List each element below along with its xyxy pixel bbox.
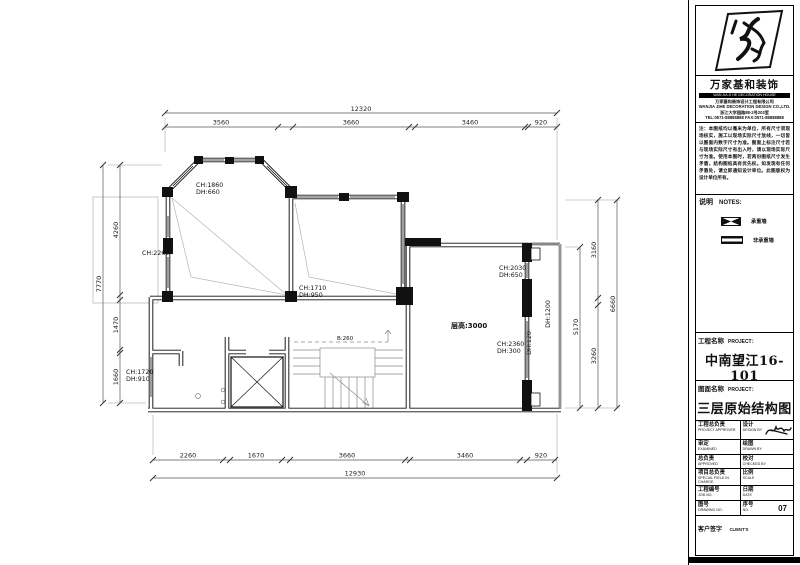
general-notes-box: 注：本图纸均以毫米为单位，所有尺寸须现场核实，施工以现场实际尺寸放线，一切皆以图… — [696, 123, 793, 195]
company-name-cn: 万家基和装饰 — [696, 77, 793, 92]
dim-bottom-overall: 12930 — [345, 470, 366, 478]
table-row: 工程编号JOB NO. 日期DATE — [696, 486, 793, 501]
project-name-box: 工程名称 PROJECT： 中南望江16-101 — [696, 333, 793, 381]
row-label-en: JOB NO. — [698, 493, 738, 497]
sill-dh-label: DH:120 — [526, 331, 533, 355]
room2-ch-label: CH:1710 — [299, 285, 326, 292]
client-label-en: CLIENT'S — [729, 527, 748, 532]
ceiling-slope-lines — [172, 198, 401, 295]
dim-bottom-seg-4: 3460 — [457, 452, 474, 460]
legend-item-bearing-wall: 承重墙 — [721, 217, 790, 226]
drawing-name-value: 三层原始结构图 — [696, 398, 793, 417]
table-row: 审定EXAMINED 绘图DRAWN BY — [696, 440, 793, 455]
client-label-cn: 客户签字 — [698, 527, 722, 533]
project-name-value: 中南望江16-101 — [696, 350, 793, 381]
logo-box — [696, 6, 793, 76]
drawing-label-en: PROJECT： — [728, 386, 757, 393]
row-label-en: EXAMINED — [698, 447, 738, 451]
row-label-en: DATE — [743, 493, 791, 497]
dimension-ticks — [100, 110, 620, 481]
right-win-ch-label: CH:2360 — [497, 341, 524, 348]
dim-left-overall: 7770 — [95, 276, 103, 293]
bearing-wall-icon — [721, 217, 741, 226]
sheet-bottom-border — [688, 557, 800, 563]
dim-bottom-seg-1: 2260 — [180, 452, 197, 460]
stair-note-label: B:260 — [337, 336, 354, 342]
dim-left-seg-3: 1660 — [112, 369, 120, 386]
dim-right-seg-2: 3260 — [590, 348, 598, 365]
dim-bottom-seg-5: 920 — [535, 452, 547, 460]
plan-circles — [196, 388, 225, 404]
dim-top-seg-2: 3660 — [343, 119, 360, 127]
legend-label-2: 非承重墙 — [753, 237, 774, 244]
legend-label-1: 承重墙 — [751, 218, 767, 225]
nonbearing-wall-icon — [721, 236, 743, 244]
drawing-label-cn: 图面名称 — [698, 383, 724, 393]
left-win-ch-label: CH:1720 — [126, 369, 153, 376]
row-label-en: DRAWN BY — [743, 447, 791, 451]
balcony-boxes — [531, 248, 540, 406]
general-notes-text: 注：本图纸均以毫米为单位，所有尺寸须现场核实，施工以现场实际尺寸放线，一切皆以图… — [699, 125, 790, 181]
right-win-dh-label: DH:300 — [497, 348, 521, 355]
dim-bottom-seg-2: 1670 — [248, 452, 265, 460]
company-box: 万家基和装饰 WAN JIA JI HE DECORATION HOUSE 万家… — [696, 76, 793, 123]
table-row: 图号DRAWING NO. 序号NO. 07 — [696, 501, 793, 515]
dim-left-seg-1: 4260 — [112, 222, 120, 239]
titleblock-column: 万家基和装饰 WAN JIA JI HE DECORATION HOUSE 万家… — [688, 0, 800, 565]
dim-bottom-seg-3: 3660 — [339, 452, 356, 460]
balcony-dh-label: DH:1200 — [545, 300, 552, 328]
drawing-name-box: 图面名称 PROJECT： 三层原始结构图 — [696, 381, 793, 421]
left-win-dh-label: DH:910 — [126, 376, 150, 383]
project-label-cn: 工程名称 — [698, 335, 724, 345]
dimension-lines — [103, 113, 617, 478]
dim-top-seg-1: 3560 — [213, 119, 230, 127]
right-door-dh-label: DH:650 — [499, 272, 523, 279]
dimension-texts: 12320 3560 3660 3460 920 2260 1670 3660 … — [95, 105, 617, 478]
left-wall-ch-label: CH:2260 — [142, 250, 169, 257]
dim-top-seg-3: 3460 — [462, 119, 479, 127]
drawing-sheet: 12320 3560 3660 3460 920 2260 1670 3660 … — [0, 0, 800, 565]
dim-right-seg-1: 3160 — [590, 242, 598, 259]
dim-right-overall: 6660 — [609, 296, 617, 313]
sheet-number-value: 07 — [778, 504, 787, 513]
notes-header-en: NOTES: — [719, 200, 742, 206]
row-label-en: SCALE — [743, 476, 791, 480]
table-row: 工程总负责PROJECT APPROVER 设计DESIGN BY — [696, 421, 793, 440]
floor-plan: 12320 3560 3660 3460 920 2260 1670 3660 … — [0, 0, 690, 565]
dim-right-inner: 5170 — [572, 319, 580, 336]
approval-table: 工程总负责PROJECT APPROVER 设计DESIGN BY 审定EXAM… — [696, 421, 793, 516]
table-row: 总负责APPROVED 校对CHECKED BY — [696, 455, 793, 470]
row-label-en: DRAWING NO. — [698, 508, 738, 512]
row-label-en: APPROVED — [698, 462, 738, 466]
row-label-en: PROJECT APPROVER — [698, 428, 738, 432]
project-label-en: PROJECT： — [728, 338, 757, 345]
company-logo — [700, 9, 790, 73]
elevator-shaft — [231, 357, 283, 407]
dim-left-seg-2: 1470 — [112, 317, 120, 334]
designer-signature — [763, 421, 793, 439]
row-label-en: CHECKED BY — [743, 462, 791, 466]
room1-ch-label: CH:1860 — [196, 182, 223, 189]
dim-top-seg-4: 920 — [535, 119, 547, 127]
right-door-ch-label: CH:2030 — [499, 265, 526, 272]
row-label-en: SPECIAL FIELD IN CHARGE — [698, 476, 738, 484]
client-signature-box: 客户签字 CLIENT'S — [696, 516, 793, 555]
company-address: 万家基和装饰设计工程有限公司 WANJIA JIHE DECORATION DE… — [696, 99, 793, 121]
notes-header-cn: 说明 — [699, 197, 713, 207]
room1-dh-label: DH:660 — [196, 189, 220, 196]
company-name-en: WAN JIA JI HE DECORATION HOUSE — [699, 93, 790, 98]
legend-item-nonbearing-wall: 非承重墙 — [721, 236, 790, 244]
table-row: 项目总负责SPECIAL FIELD IN CHARGE 比例SCALE — [696, 469, 793, 486]
room2-dh-label: DH:950 — [299, 292, 323, 299]
storey-height-label: 层高:3000 — [450, 321, 487, 330]
legend-box: 说明 NOTES: 承重墙 — [696, 195, 793, 333]
dim-top-overall: 12320 — [351, 105, 372, 113]
